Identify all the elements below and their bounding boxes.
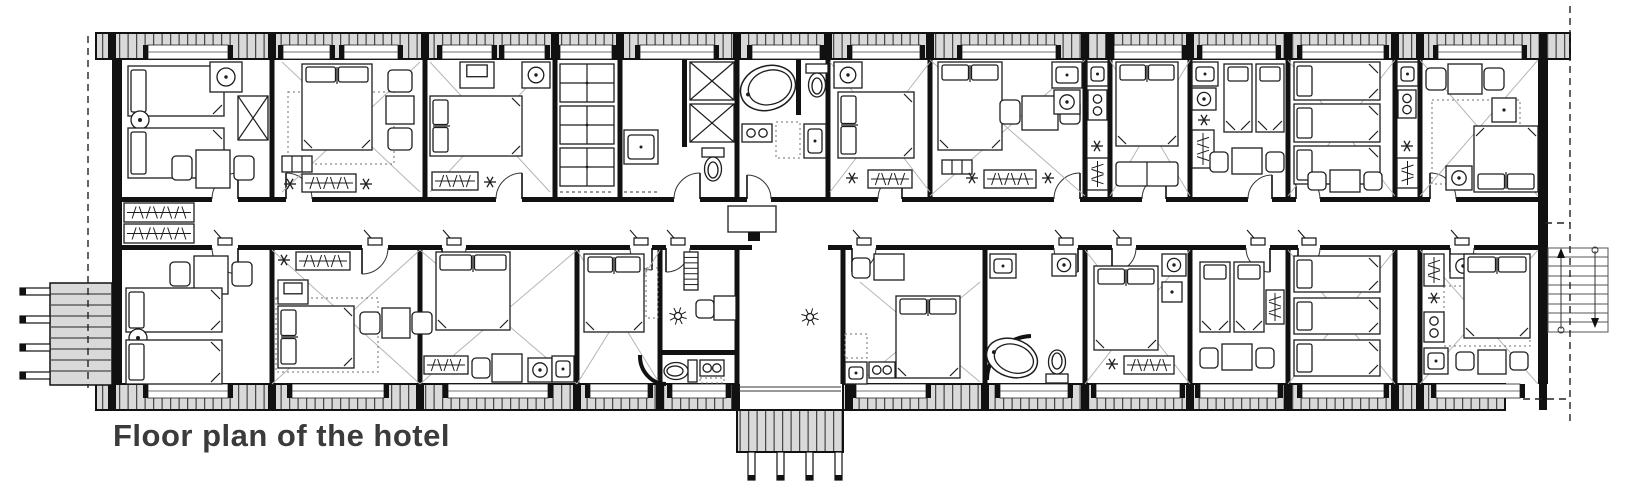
- room-b8-suite-bathroom: [981, 254, 1076, 384]
- room-b11-triple-room: [1288, 250, 1395, 384]
- room-t11-twin-room: [1192, 62, 1284, 174]
- left-exterior-staircase: [20, 283, 112, 385]
- room-t7-double-room: [830, 62, 930, 192]
- main-entrance-steps: [737, 410, 843, 480]
- right-exterior-staircase: [1548, 247, 1608, 333]
- room-b12-corner-double-room: [1420, 250, 1538, 384]
- room-t1-twin-room: [128, 62, 268, 188]
- room-t14-corner-double-room: [1420, 60, 1538, 196]
- room-t12-triple-room: [1288, 60, 1395, 196]
- room-b9-double-room: [1085, 250, 1190, 384]
- hotel-floor-plan-page: Floor plan of the hotel: [0, 0, 1636, 500]
- room-b2-double-room: [272, 250, 432, 384]
- hotel-floor-plan-drawing: Floor plan of the hotel: [0, 0, 1636, 500]
- room-t9-kitchenette-strip: [1087, 62, 1108, 190]
- room-b7-double-room: [845, 254, 980, 384]
- room-b4-double-room: [577, 250, 660, 384]
- generated-plan: [20, 6, 1608, 480]
- room-t4-linen-storage: [560, 64, 614, 192]
- room-b3-double-room: [420, 250, 577, 384]
- room-t2-double-room: [282, 62, 420, 192]
- caption-title: Floor plan of the hotel: [113, 418, 450, 453]
- room-t5-shared-bathroom: [624, 59, 734, 192]
- room-t10-double-room: [1110, 60, 1190, 196]
- room-b1-twin-room: [126, 256, 252, 384]
- room-t8-double-room: [930, 60, 1085, 196]
- room-t3-double-room: [430, 62, 550, 192]
- room-b10-twin-room: [1200, 262, 1284, 370]
- room-t6-suite-bathroom: [735, 58, 828, 158]
- room-t13-kitchenette-strip: [1397, 62, 1418, 188]
